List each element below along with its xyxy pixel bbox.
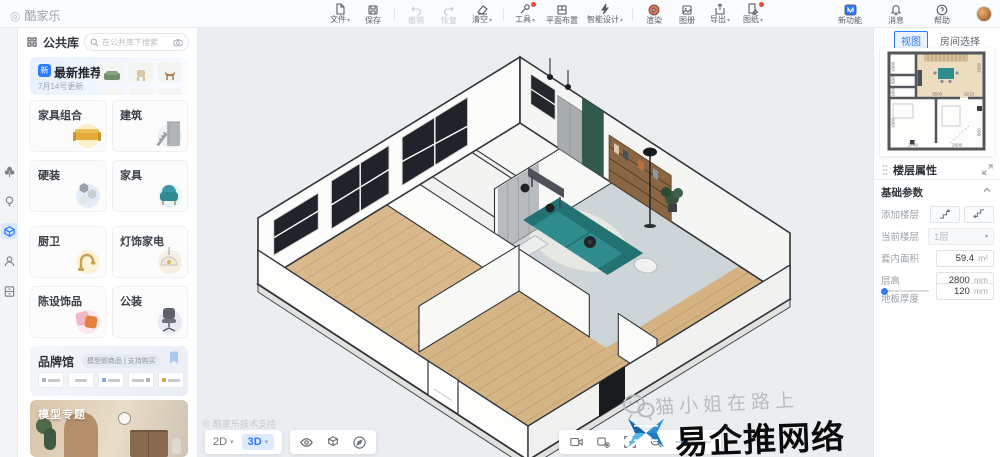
left-icon-rail [0, 28, 18, 457]
toolbar-save[interactable]: 保存 [361, 0, 385, 28]
brand-logo[interactable] [128, 372, 154, 388]
sofa-combo-icon [72, 119, 102, 149]
top-toolbar: ◎ 酷家乐 文件▾ 保存 撤销 恢复 清空▾ 工具▾ [0, 0, 1000, 28]
image-icon [681, 4, 693, 16]
brand-logo[interactable] [38, 372, 64, 388]
floorplan-3d-view [198, 28, 873, 457]
rail-my-assets-button[interactable] [1, 253, 17, 269]
brand-hall-card[interactable]: 品牌馆 模型即商品 | 支持购买 [30, 346, 188, 396]
banner-art-clock [118, 412, 131, 425]
toolbar-floorplan-layout[interactable]: 平面布置 [546, 0, 578, 28]
category-furniture[interactable]: 家具 [112, 160, 188, 212]
recommend-subtitle: 7月14号更新 [38, 81, 83, 92]
tab-room-select[interactable]: 房间选择 [940, 33, 980, 48]
category-furnishings[interactable]: 陈设饰品 [30, 286, 106, 338]
mode-2d-button[interactable]: 2D▾ [213, 436, 234, 448]
svg-text:800: 800 [977, 128, 982, 136]
drag-handle-icon [881, 164, 889, 176]
toolbar-separator [503, 7, 504, 21]
drawing-icon [747, 3, 759, 15]
camera-view-button[interactable] [569, 435, 584, 449]
search-box [84, 33, 189, 51]
lightbulb-icon [3, 195, 16, 208]
toolbar-tools-menu[interactable]: 工具▾ [513, 0, 537, 28]
latest-recommend-card[interactable]: 新 最新推荐 7月14号更新 [30, 57, 188, 95]
interior-area-value[interactable]: 59.4 m² [936, 250, 994, 267]
current-floor-select[interactable]: 1层 ▾ [928, 228, 994, 245]
current-floor-label: 当前楼层 [881, 229, 928, 243]
toolbar-separator [394, 7, 395, 21]
notification-dot [531, 2, 536, 7]
slab-thickness-slider[interactable] [881, 290, 929, 292]
help-icon [936, 4, 948, 16]
model-display-button[interactable] [326, 435, 340, 449]
category-lighting-appliance[interactable]: 灯饰家电 [112, 226, 188, 278]
asset-library-sidebar: 公共库 新 最新推荐 7月14号更新 家具组合 建筑 [18, 28, 198, 457]
floor-properties-title: 楼层属性 [893, 162, 978, 178]
toolbar-album[interactable]: 图册 [675, 0, 699, 28]
toolbar-render[interactable]: 渲染 [642, 0, 666, 28]
search-input[interactable] [102, 38, 170, 47]
model-topic-banner[interactable]: 模型专题 [30, 400, 188, 457]
toolbar-drawings[interactable]: 图纸▾ [741, 0, 765, 28]
app-logo[interactable]: ◎ 酷家乐 [10, 7, 61, 24]
svg-text:2740: 2740 [908, 143, 919, 148]
notification-dot [759, 2, 764, 7]
svg-text:600: 600 [891, 76, 896, 84]
interior-area-label: 套内面积 [881, 251, 936, 265]
ribbon-icon [166, 350, 182, 366]
new-features-button[interactable]: 新功能 [838, 0, 862, 28]
display-options-bar [290, 430, 376, 454]
svg-text:2600: 2600 [952, 143, 963, 148]
brand-logo-row [38, 372, 184, 388]
add-floor-label: 添加楼层 [881, 207, 926, 221]
toolbar-redo[interactable]: 恢复 [437, 0, 461, 28]
kujiale-logo-icon: ◎ [10, 9, 20, 23]
messages-button[interactable]: 消息 [884, 0, 908, 28]
slab-slider-knob[interactable] [881, 288, 888, 295]
library-box-icon [3, 225, 16, 238]
library-tab[interactable]: 公共库 [43, 34, 79, 51]
undo-icon [410, 4, 422, 16]
grid-menu-icon[interactable] [26, 36, 38, 48]
app-logo-text: 酷家乐 [24, 7, 60, 24]
toolbar-right: 新功能 消息 帮助 [838, 0, 992, 28]
recommend-thumbnail[interactable] [129, 88, 153, 95]
new-features-icon [844, 4, 857, 16]
pendant-lamp-icon [154, 245, 184, 275]
user-avatar[interactable] [976, 6, 992, 22]
export-icon [714, 3, 726, 15]
rail-scheme-button[interactable] [1, 163, 17, 179]
office-chair-icon [154, 305, 184, 335]
rail-public-library-button[interactable] [1, 223, 17, 239]
armchair-icon [154, 179, 184, 209]
door-stair-icon [154, 119, 184, 149]
brand-logo[interactable] [98, 372, 124, 388]
slab-thickness-input[interactable]: 120 mm [936, 283, 994, 300]
kujiale-badge-icon: ◎ [202, 418, 210, 429]
right-properties-panel: 视图 房间选择 1800 600 [873, 28, 1000, 457]
svg-text:1800: 1800 [891, 61, 896, 72]
support-text: ◎ 酷家乐技术支持 [202, 417, 276, 430]
mode-3d-button[interactable]: 3D▾ [242, 434, 275, 450]
search-icon [90, 38, 99, 47]
recommend-thumbnail[interactable] [100, 62, 124, 82]
banner-art-vase [172, 438, 181, 454]
eraser-icon [476, 3, 488, 15]
floor-height-label: 层高 [881, 273, 936, 287]
banner-art-plant [44, 428, 56, 450]
save-icon [367, 4, 379, 16]
toolbar-tools: 文件▾ 保存 撤销 恢复 清空▾ 工具▾ 平面布置 [328, 0, 765, 28]
help-button[interactable]: 帮助 [930, 0, 954, 28]
zoom-slider-knob[interactable] [681, 439, 688, 446]
toolbar-file[interactable]: 文件▾ [328, 0, 352, 28]
zoom-slider[interactable] [675, 441, 711, 443]
recommend-thumbnail[interactable] [158, 88, 182, 95]
svg-text:1500: 1500 [977, 62, 982, 73]
banner-art-cabinet [130, 430, 168, 457]
visibility-button[interactable] [299, 435, 314, 450]
category-hard-decor[interactable]: 硬装 [30, 160, 106, 212]
view-mode-switcher: 2D▾ 3D▾ [205, 430, 282, 454]
add-floor-up-button[interactable] [930, 206, 960, 223]
svg-text:3210: 3210 [964, 92, 975, 97]
recommend-badge-icon: 新 [38, 64, 51, 77]
bell-icon [890, 4, 902, 16]
recommend-title: 最新推荐 [54, 64, 102, 81]
add-floor-down-button[interactable] [964, 206, 994, 223]
scheme-tree-icon [3, 165, 16, 178]
layout-icon [556, 4, 568, 16]
user-icon [3, 255, 16, 268]
toolbar-separator [632, 7, 633, 21]
orbit-compass-button[interactable] [352, 435, 367, 450]
category-furniture-combo[interactable]: 家具组合 [30, 100, 106, 152]
recommend-thumbnail[interactable] [158, 62, 182, 82]
hex-tiles-icon [72, 179, 102, 209]
svg-text:3500: 3500 [932, 92, 943, 97]
toolbar-smart-design[interactable]: 智能设计▾ [587, 0, 623, 28]
wrench-icon [519, 3, 531, 15]
zoom-out-button[interactable] [649, 435, 663, 449]
camera-settings-button[interactable] [596, 435, 611, 449]
faucet-icon [72, 245, 102, 275]
basic-params-section-title: 基础参数 [881, 185, 923, 200]
recommend-thumbnail[interactable] [129, 62, 153, 82]
recommend-thumbnail[interactable] [100, 88, 124, 95]
fullscreen-button[interactable] [623, 435, 637, 449]
rail-inspiration-button[interactable] [1, 193, 17, 209]
svg-text:1800: 1800 [891, 86, 896, 97]
brand-logo[interactable] [158, 372, 184, 388]
cabinet-icon [3, 285, 16, 298]
brand-logo[interactable] [68, 372, 94, 388]
file-icon [334, 3, 346, 15]
lightning-icon [599, 3, 611, 15]
render-icon [648, 4, 660, 16]
category-kitchen-bath[interactable]: 厨卫 [30, 226, 106, 278]
main-3d-viewport[interactable]: ◎ 酷家乐技术支持 2D▾ 3D▾ 猫小姐在路上 易企 [198, 28, 873, 457]
pillows-icon [72, 305, 102, 335]
redo-icon [443, 4, 455, 16]
add-floor-up-icon [939, 209, 951, 219]
collapse-chevron-icon[interactable] [982, 185, 992, 195]
image-search-camera-icon[interactable] [173, 38, 183, 47]
rail-enterprise-library-button[interactable] [1, 283, 17, 299]
svg-text:1800: 1800 [891, 117, 896, 128]
category-architecture[interactable]: 建筑 [112, 100, 188, 152]
camera-zoom-bar [559, 430, 721, 454]
floorplan-minimap[interactable]: 1800 600 1800 1800 3500 3210 2740 2600 1… [880, 48, 994, 156]
toolbar-export[interactable]: 导出▾ [708, 0, 732, 28]
category-commercial[interactable]: 公装 [112, 286, 188, 338]
add-floor-down-icon [973, 209, 985, 219]
toolbar-undo[interactable]: 撤销 [404, 0, 428, 28]
toolbar-clear[interactable]: 清空▾ [470, 0, 494, 28]
expand-panel-icon[interactable] [982, 164, 993, 175]
